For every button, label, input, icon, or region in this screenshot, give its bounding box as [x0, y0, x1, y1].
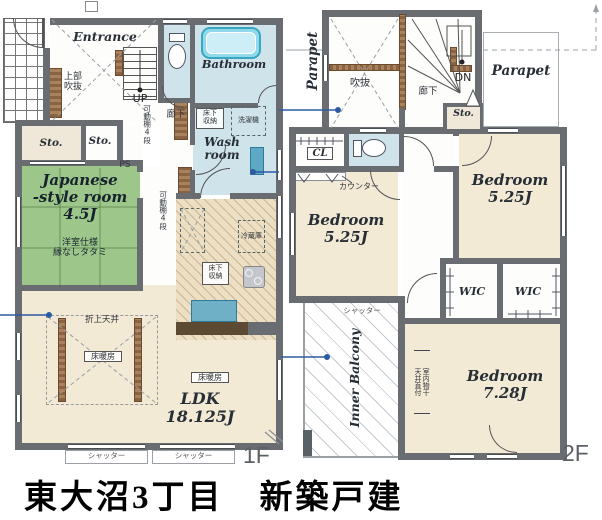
entrance-label: Entrance [60, 30, 150, 44]
parapet-right-label: Parapet [489, 64, 553, 79]
bedroom-right-label: Bedroom 5.25J [464, 172, 556, 206]
counter-label: カウンター [334, 182, 384, 191]
movable-shelf-label-2: 可動棚4段 [158, 183, 167, 238]
ps-label: PS [114, 160, 136, 170]
page-title: 東大沼3丁目 新築戸建 [24, 470, 404, 518]
coved-ceiling-label: 折上天井 [76, 316, 128, 326]
washing-machine-label: 洗濯機 [231, 116, 266, 124]
underfloor-storage-label-wash: 床下 収納 [196, 109, 224, 125]
japanese-room-spec-label: 洋室仕様 縁なしタタミ [30, 238, 130, 259]
inner-balcony-label: Inner Balcony [348, 328, 364, 428]
stair-pole-dot-2f [460, 60, 465, 65]
door-triangle-mark [466, 90, 480, 106]
indoor-drying-label: 室内物干 天井直付 [414, 350, 430, 414]
bathroom-label: Bathroom [198, 58, 270, 71]
wic-label-1: WIC [451, 286, 493, 298]
storage-label-2: Sto. [86, 136, 114, 148]
closet-rod-2f [296, 137, 343, 145]
bedroom-728-label: Bedroom 7.28J [455, 368, 555, 402]
floor-heating-label-2: 床暖房 [191, 372, 229, 383]
japanese-room-label: Japanese -style room 4.5J [22, 172, 138, 222]
corridor-1f-label: 廊下 [158, 110, 194, 121]
floor-plan-canvas: Entrance 上部 吹抜 UP 可動棚4段 廊下 Bathroom 床下 収… [0, 0, 602, 520]
closet-label: CL [307, 147, 333, 160]
parapet-left-label: Parapet [306, 16, 324, 106]
bedroom-left-label: Bedroom 5.25J [300, 212, 392, 246]
floor1-label: 1F [243, 442, 270, 469]
dimension-arrow [593, 4, 599, 12]
dimension-lines [286, 10, 596, 50]
wic-label-2: WIC [507, 286, 549, 298]
shutter-label-3: シャッター [336, 307, 388, 316]
corridor-2f-label: 廊下 [410, 87, 446, 98]
movable-shelf-label-1: 可動棚4段 [142, 97, 151, 152]
dn-label: DN [448, 72, 478, 85]
washroom-label: Wash room [196, 136, 248, 163]
underfloor-storage-label-kitchen: 床下 収納 [202, 264, 229, 280]
sto-2f-label: Sto. [447, 109, 480, 120]
refrigerator-label: 冷蔵庫 [238, 232, 265, 240]
shutter-label-2: シャッター [152, 452, 235, 461]
storage-label-1: Sto. [36, 138, 66, 150]
ldk-label: LDK 18.125J [160, 390, 240, 426]
upper-void-label: 上部 吹抜 [58, 72, 88, 93]
stove-burners [246, 270, 262, 285]
floor-heating-label-1: 床暖房 [84, 351, 122, 362]
shutter-label-1: シャッター [65, 452, 148, 461]
floor2-label: 2F [562, 440, 589, 467]
void-label: 吹抜 [340, 78, 380, 90]
